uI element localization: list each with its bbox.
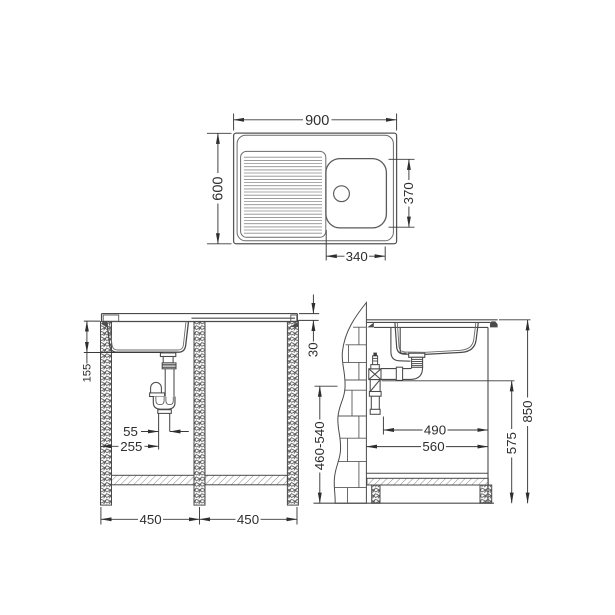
svg-text:370: 370 [401,182,416,204]
svg-text:55: 55 [123,424,138,439]
svg-text:850: 850 [520,400,535,422]
svg-text:450: 450 [140,512,162,527]
svg-text:30: 30 [306,342,321,357]
svg-text:340: 340 [346,249,368,264]
svg-text:560: 560 [422,439,444,454]
svg-text:255: 255 [120,439,142,454]
svg-text:575: 575 [504,432,519,454]
svg-text:900: 900 [305,113,329,129]
svg-text:490: 490 [424,423,446,438]
svg-text:600: 600 [210,176,226,200]
svg-text:450: 450 [237,512,259,527]
svg-text:155: 155 [82,364,94,383]
svg-text:460-540: 460-540 [312,421,327,470]
